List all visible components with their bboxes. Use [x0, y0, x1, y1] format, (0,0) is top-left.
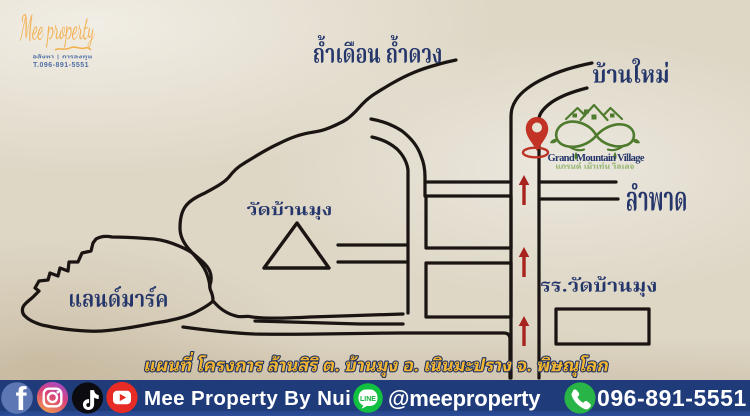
svg-text:f: f	[16, 380, 28, 416]
svg-text:Grand Mountain Village: Grand Mountain Village	[548, 153, 645, 164]
svg-text:T.096-891-5551: T.096-891-5551	[33, 62, 89, 69]
svg-text:LINE: LINE	[360, 396, 376, 403]
